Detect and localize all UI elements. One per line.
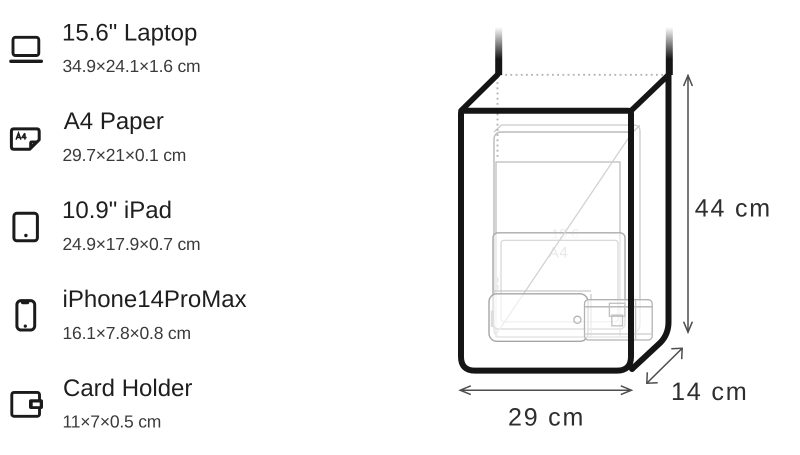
svg-text:15.6" Laptop: 15.6" Laptop [62,19,197,46]
svg-text:24.9×17.9×0.7 cm: 24.9×17.9×0.7 cm [63,234,201,254]
svg-text:44 cm: 44 cm [695,195,772,223]
svg-text:10.9" iPad: 10.9" iPad [62,197,172,224]
svg-text:29 cm: 29 cm [508,404,585,432]
svg-text:Card Holder: Card Holder [63,375,192,402]
svg-text:iPhone14ProMax: iPhone14ProMax [63,286,247,313]
svg-text:11×7×0.5 cm: 11×7×0.5 cm [63,412,162,432]
svg-text:16.1×7.8×0.8 cm: 16.1×7.8×0.8 cm [63,323,191,343]
svg-text:A4 Paper: A4 Paper [64,108,164,135]
svg-text:14 cm: 14 cm [671,378,749,406]
svg-text:29.7×21×0.1 cm: 29.7×21×0.1 cm [63,145,187,165]
svg-text:34.9×24.1×1.6 cm: 34.9×24.1×1.6 cm [63,56,201,76]
